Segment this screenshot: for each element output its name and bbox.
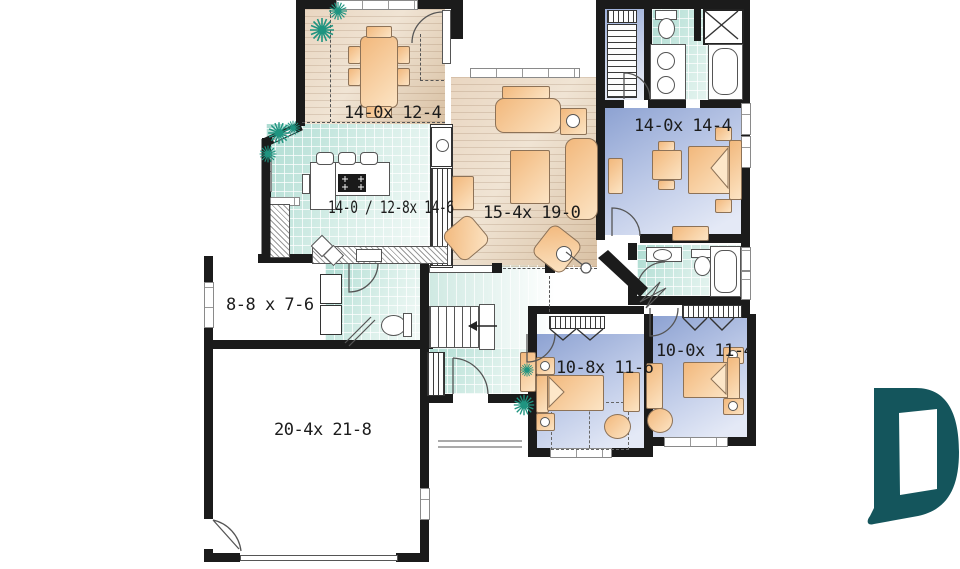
floor-plan-canvas: 14-0x 12-4 14-0 / 12-8x 14-6 15-4x 19-0 … [0, 0, 960, 569]
wall [648, 100, 686, 108]
window [741, 271, 751, 300]
brand-logo-d [868, 388, 959, 524]
bar-stool [316, 152, 334, 165]
nightstand-lamp [540, 417, 550, 427]
window [664, 437, 728, 447]
garage-side-door-arc [213, 520, 241, 551]
porch-step [438, 440, 522, 442]
dining-room-label: 14-0x 12-4 [344, 105, 441, 122]
window [204, 282, 214, 328]
railing-post [492, 263, 502, 273]
staircase [429, 306, 481, 348]
dining-chair [348, 46, 361, 64]
patio-door-leaf [442, 10, 451, 64]
dryer [320, 305, 342, 335]
dining-table [360, 36, 398, 108]
nightstand-lamp [540, 361, 550, 371]
window [741, 247, 751, 271]
window [470, 68, 580, 78]
window [420, 488, 430, 520]
wall [628, 296, 750, 305]
kitchen-counter-left [266, 204, 290, 258]
bath2-tub-basin [714, 250, 737, 293]
sofa [495, 98, 561, 133]
bath2-sink [653, 249, 672, 261]
bed3-headboard [727, 357, 740, 403]
bed2-mattress [547, 375, 604, 411]
bedroom-3-label: 10-0x 11-4 [656, 343, 753, 360]
master-chair [658, 141, 675, 151]
garage-label: 20-4x 21-8 [274, 422, 371, 439]
wall [628, 243, 637, 260]
bedroom-2-label: 10-8x 11-6 [556, 360, 653, 377]
table-lamp [566, 114, 580, 128]
wall [204, 349, 213, 519]
master-nightstand [715, 199, 732, 213]
bed2-chair [604, 414, 631, 439]
dining-chair [397, 46, 410, 64]
window [741, 136, 751, 168]
porch-step [438, 446, 522, 448]
wall [694, 9, 701, 41]
wall [451, 9, 463, 39]
dining-chair [397, 68, 410, 86]
boundary-dashed-line [420, 34, 421, 80]
boundary-dashed-line [503, 268, 545, 269]
storage-room-label: 8-8 x 7-6 [226, 297, 314, 314]
side-table [452, 176, 474, 210]
wall [296, 0, 305, 126]
shower [703, 9, 744, 45]
small-appliance [356, 249, 382, 262]
wall [204, 340, 433, 349]
stair-landing [479, 304, 495, 350]
master-chair [658, 180, 675, 190]
bar-stool [360, 152, 378, 165]
dining-chair [348, 68, 361, 86]
garage-door [240, 555, 398, 561]
window [741, 103, 751, 135]
bar-stool [338, 152, 356, 165]
bed3-mattress [683, 362, 730, 398]
wall [204, 553, 240, 562]
master-closet-rod [607, 10, 637, 23]
bath2-toilet-bowl [694, 256, 711, 276]
nightstand-lamp [728, 401, 738, 411]
foyer-planter [520, 352, 536, 392]
refrigerator-knob [436, 139, 449, 152]
bed2-dresser [623, 372, 640, 412]
bedroom-3-closet [682, 305, 742, 318]
powder-toilet-tank [403, 313, 412, 337]
master-closet-shelves [607, 24, 637, 98]
boundary-dashed-line [549, 276, 550, 312]
window [262, 150, 272, 192]
master-dresser-2 [608, 158, 623, 194]
wall [747, 314, 756, 446]
dishwasher-handle [302, 174, 310, 194]
window [336, 0, 418, 10]
bed3-chair [647, 408, 673, 433]
master-dresser [672, 226, 709, 241]
master-tub-basin [712, 48, 738, 95]
living-room-label: 15-4x 19-0 [483, 205, 580, 222]
wall [420, 256, 429, 349]
wall [536, 306, 644, 314]
boundary-dashed-line [420, 80, 444, 81]
kitchen-label: 14-0 / 12-8x 14-6 [328, 200, 454, 217]
washer [320, 274, 342, 304]
wall [596, 0, 750, 9]
bedroom-2-closet [549, 316, 605, 329]
boundary-dashed-line [330, 10, 331, 122]
wall [596, 100, 624, 108]
wall [700, 100, 741, 108]
master-game-table [652, 150, 682, 180]
vanity-sink [657, 52, 675, 70]
master-bedroom-label: 14-0x 14-4 [634, 118, 731, 135]
master-bed-headboard [729, 140, 742, 200]
master-toilet-bowl [658, 18, 675, 39]
floor-lamp [556, 246, 572, 262]
dining-chair [366, 26, 392, 38]
vanity-sink [657, 76, 675, 94]
understairs-closet [427, 352, 445, 396]
coffee-table [510, 150, 550, 204]
master-bed-mattress [688, 146, 732, 194]
